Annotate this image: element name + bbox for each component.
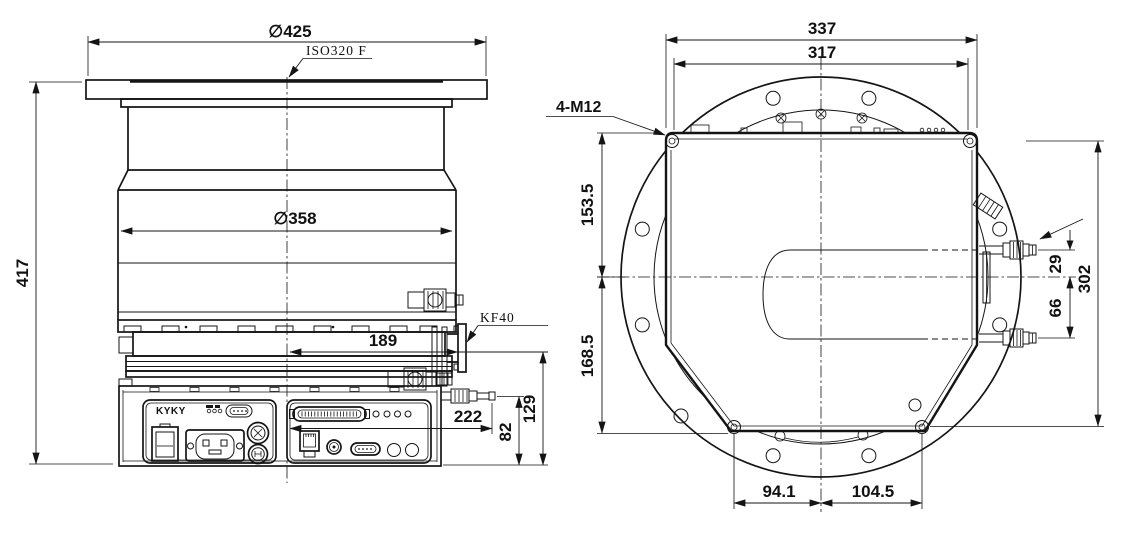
dsub-connector-small: [226, 405, 252, 417]
drawing-canvas: KYKY: [0, 0, 1141, 544]
dim-port-spacing: 66: [1046, 299, 1065, 318]
base-plate: [666, 122, 979, 434]
dim-top-to-center: 153.5: [578, 184, 597, 227]
power-switch: [152, 424, 178, 461]
bottom-view: 337 317 4-M12 153.5 168.5 29 66: [546, 19, 1104, 512]
power-panel: KYKY: [143, 400, 276, 464]
adapter-plate: [126, 371, 452, 377]
vent-valve-upper: [408, 289, 463, 311]
dim-foreline-height: 129: [520, 395, 539, 423]
dim-body-diameter: ∅358: [273, 209, 316, 228]
dim-purge-height: 82: [496, 423, 515, 442]
controller-base: KYKY: [119, 386, 495, 466]
dim-overall-height: 417: [13, 259, 32, 287]
dim-flange-standard: ISO320 F: [306, 43, 367, 58]
ethernet-jack: [300, 431, 319, 457]
status-leds: [373, 411, 411, 417]
dc-jack: [327, 440, 341, 454]
dim-port-above-center: 29: [1046, 255, 1065, 274]
dim-purge-offset: 222: [454, 407, 482, 426]
pump-dimension-drawing: KYKY: [0, 0, 1141, 544]
round-connector-lower: [249, 445, 268, 464]
db9-connector: [351, 443, 380, 455]
interface-panel: [287, 400, 431, 463]
label-corner-bolts: 4-M12: [556, 99, 601, 116]
top-edge-components: [691, 122, 945, 133]
dim-center-to-bottom: 168.5: [578, 335, 597, 378]
vent-slots: [150, 388, 399, 392]
dim-bolt-spacing: 317: [808, 43, 836, 62]
dim-foreline-offset: 189: [369, 331, 397, 350]
dim-bolt-vertical-span: 302: [1075, 265, 1094, 293]
inlet-flange: [86, 80, 487, 107]
base-purge-fitting: [441, 389, 495, 403]
power-inlet: [186, 430, 244, 461]
brand-logo: KYKY: [156, 406, 186, 417]
fuse-button-1: [388, 444, 401, 457]
fitting-leader: [1040, 219, 1083, 239]
side-fitting-lower: [979, 329, 1036, 347]
lower-ring-b: [126, 356, 452, 371]
dim-base-width: 337: [808, 19, 836, 38]
front-view: KYKY: [13, 22, 548, 483]
io-connector: [290, 407, 370, 421]
dim-bottom-bolt-right: 104.5: [852, 482, 895, 501]
fuse-button-2: [406, 444, 419, 457]
dim-flange-diameter: ∅425: [268, 22, 311, 41]
front-dimensions: ∅425 ISO320 F 417 ∅358 189 KF40 222: [13, 22, 548, 465]
label-foreline-port: KF40: [480, 310, 515, 325]
side-fitting-upper: [979, 241, 1036, 259]
dim-bottom-bolt-left: 94.1: [762, 482, 795, 501]
round-connector-upper: [248, 423, 269, 444]
